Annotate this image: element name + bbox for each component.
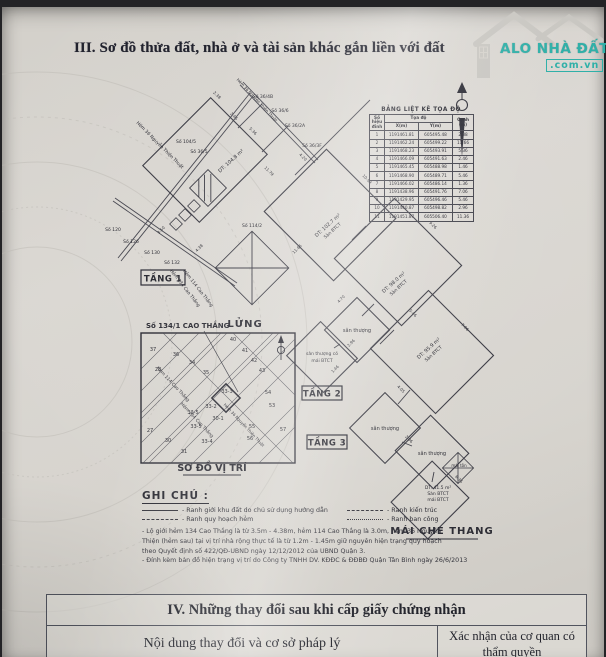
parcel-number: 55 [249, 424, 255, 430]
dimension-label: 4.70 [336, 294, 346, 304]
so-do-vi-tri-label: SƠ ĐỒ VỊ TRÍ [177, 461, 247, 474]
area-t2: DT: 98.0 m² Sàn BTCT [381, 271, 411, 300]
coord-row: 11191461.81605495.482.38 [370, 131, 474, 139]
line-swatch-dash [142, 519, 178, 520]
coord-row: 31191468.23605493.915.36 [370, 147, 474, 155]
parcel-number: 33-4 [201, 439, 212, 445]
legend-notes: - Lộ giới hẻm 134 Cao Thắng là từ 3.5m -… [142, 527, 492, 566]
section4-table: IV. Những thay đổi sau khi cấp giấy chứn… [46, 594, 587, 657]
house-number-label: Số 36/5 [190, 148, 207, 155]
coordinate-table-grid: Số hiệu đỉnh Tọa độ Cạnh (m) X(m) Y(m) 1… [369, 114, 474, 222]
label-tang-2: TẦNG 2 [302, 386, 342, 400]
col-y: Y(m) [419, 123, 453, 131]
parcel-number: 31 [181, 449, 187, 455]
coordinate-table-title: BẢNG LIỆT KÊ TỌA ĐỘ [369, 107, 473, 113]
legend-item: - Ranh giới khu đất do chủ sử dụng hướng… [142, 507, 347, 514]
house-number-label: Số 130 [144, 249, 160, 256]
parcel-number: 32-5 [187, 410, 198, 416]
dimension-label: 5.36 [248, 126, 258, 136]
line-swatch-solid [142, 510, 178, 511]
parcel-number: 30 [165, 438, 171, 444]
brand-domain: .com.vn [546, 59, 603, 72]
mai-ton-label: mái tôn [451, 463, 467, 468]
parcel-number: 40 [230, 337, 236, 343]
dimension-label: 4.20 [298, 152, 308, 162]
coord-row: 41191466.09605491.632.46 [370, 156, 474, 164]
san-thuong-label: sân thượng [343, 327, 371, 334]
tang3-label: TẦNG 3 [308, 436, 346, 449]
legend-title: GHI CHÚ : [142, 490, 209, 504]
coordinate-table: BẢNG LIỆT KÊ TỌA ĐỘ Số hiệu đỉnh Tọa độ … [369, 107, 473, 222]
photo-frame: TẦNG 1 TẦNG 2 TẦNG 3 LỬNG SƠ ĐỒ VỊ TRÍ M… [0, 0, 606, 657]
coord-row: 51191465.45605488.981.46 [370, 164, 474, 172]
brand-logo: ALO NHÀ ĐẤT .com.vn [472, 8, 606, 80]
legend-item: - Ranh ban công [347, 516, 492, 523]
san-thuong-label: sân thượng [418, 450, 446, 457]
legend-item: - Ranh quy hoạch hẻm [142, 516, 347, 523]
coord-row: 61191468.90605489.715.46 [370, 172, 474, 180]
lung-label: LỬNG [227, 316, 262, 330]
tang2-label: TẦNG 2 [303, 387, 341, 400]
brand-name: ALO NHÀ ĐẤT [500, 41, 606, 57]
area-t3: DT: 95.9 m² Sàn BTCT [416, 337, 446, 366]
house-number-label: Số 126 [123, 238, 139, 245]
note-line: - Lộ giới hẻm 134 Cao Thắng là từ 3.5m -… [142, 527, 492, 537]
col-edge: Cạnh (m) [453, 115, 474, 131]
house-number-label: Số 104/5 [176, 138, 196, 145]
dimension-label: 2.96 [346, 338, 356, 348]
street-name: Hẻm 36 Nguyễn Thiện Thuật [135, 120, 186, 171]
section4-title: IV. Những thay đổi sau khi cấp giấy chứn… [47, 595, 586, 626]
line-swatch-dot [347, 519, 383, 520]
house-number-label: Số 36/2A [285, 122, 306, 129]
street-name: Hẻm 36 Nguyễn Thiện Thuật [236, 77, 279, 123]
note-line: - Đính kèm bản đồ hiện trạng vị trí do C… [142, 556, 492, 566]
area-t1: DT: 104.8 m² [217, 148, 245, 174]
san-thuong-mai-label: mái BTCT [311, 357, 333, 364]
parcel-number: 43 [259, 368, 265, 374]
document-paper: TẦNG 1 TẦNG 2 TẦNG 3 LỬNG SƠ ĐỒ VỊ TRÍ M… [2, 7, 604, 657]
coord-row: 101191440.87605498.822.96 [370, 205, 474, 213]
parcel-number: 36 [173, 352, 179, 358]
parcel-number: 28 [155, 367, 161, 373]
parcel-number: 57 [280, 427, 286, 433]
house-134-label: Số 134/1 CAO THẮNG [146, 320, 230, 330]
col-vertex: Số hiệu đỉnh [370, 115, 385, 131]
coord-row: 91191429.95605496.465.46 [370, 196, 474, 204]
section4-col-left: Nội dung thay đổi và cơ sở pháp lý [47, 626, 437, 657]
area-lung: DT: 102.7 m² Sàn BTCT [314, 213, 347, 244]
parcel-number: 42 [251, 358, 257, 364]
parcel-number: 33-5 [190, 424, 201, 430]
note-line: theo Quyết định số 422/QĐ-UBND ngày 12/1… [142, 547, 492, 557]
parcel-number: 53 [269, 403, 275, 409]
col-coord: Tọa độ [385, 115, 453, 123]
coord-row: 111191451.87605506.4011.36 [370, 213, 474, 221]
parcel-number: 35 [203, 370, 209, 376]
house-number-label: Số 36/6 [271, 107, 288, 114]
legend-item: - Ranh kiến trúc [347, 507, 492, 514]
legend-block: GHI CHÚ : - Ranh giới khu đất do chủ sử … [142, 484, 492, 566]
house-number-label: Số 120 [105, 226, 121, 233]
house-number-label: Số 114/2 [242, 222, 262, 229]
parcel-number: 41 [242, 348, 248, 354]
dimension-label: 2.38 [212, 90, 222, 100]
san-thuong-mai-label: sân thượng có [306, 350, 338, 357]
coord-row: 21191462.24605499.2211.66 [370, 139, 474, 147]
dimension-label: 1.46 [330, 364, 340, 374]
parcel-number: 56 [247, 436, 253, 442]
house-number-label: Số 132 [164, 259, 180, 266]
section4-col-right: Xác nhận của cơ quan có thẩm quyền [437, 626, 586, 657]
label-tang-3: TẦNG 3 [307, 435, 347, 449]
dimension-label: 11.79 [263, 165, 275, 177]
dimension-label: 3.50 [156, 225, 166, 235]
parcel-number: 27 [147, 428, 153, 434]
street-name: Hẻm 36 Nguyễn Thiện Thuật [223, 402, 266, 448]
parcel-number: 33-2 [205, 404, 216, 410]
parcel-number: 54 [265, 390, 271, 396]
san-thuong-label: sân thượng [371, 425, 399, 432]
note-line: Thiện (hẻm sau) tại vị trí nhà rộng thực… [142, 537, 492, 547]
dimension-label: 5.46 [408, 308, 418, 318]
dimension-label: 4.38 [194, 243, 204, 253]
line-swatch-dash [347, 510, 383, 511]
house-number-label: Số 36/4B [253, 93, 273, 100]
coord-table-body: 11191461.81605495.482.3821191462.2460549… [370, 131, 474, 221]
parcel-number: 30-1 [212, 416, 223, 422]
parcel-number: 37 [150, 347, 156, 353]
coord-row: 81191438.96605491.767.06 [370, 188, 474, 196]
house-number-label: Số 36/3F [302, 142, 322, 149]
dimension-label: 4.05 [396, 384, 406, 394]
col-x: X(m) [385, 123, 419, 131]
section3-title: III. Sơ đồ thửa đất, nhà ở và tài sản kh… [74, 40, 494, 57]
parcel-number: 34 [189, 360, 195, 366]
coord-row: 71191466.02605486.141.36 [370, 180, 474, 188]
parcel-number: 33-3 [221, 389, 232, 395]
